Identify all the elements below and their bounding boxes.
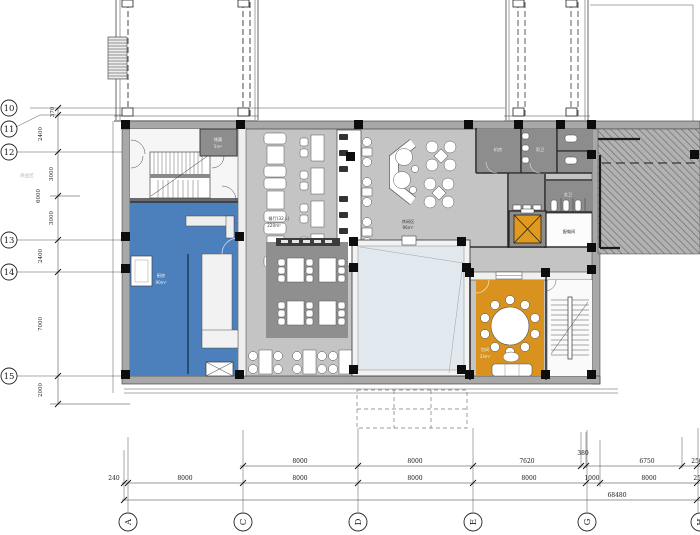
grid-bubble-row-15: 15 bbox=[4, 372, 15, 382]
dim-lower-8000-cd: 8000 bbox=[292, 475, 307, 482]
grid-bubble-row-14: 14 bbox=[4, 268, 15, 278]
floor-plan-drawing: 370 2400 6000 3000 3000 2400 7000 2000 8… bbox=[0, 0, 700, 535]
room-label-lounge-area: 96m² bbox=[402, 225, 413, 230]
grid-bubble-col-c: C bbox=[239, 519, 249, 526]
coffee-table bbox=[503, 352, 519, 362]
dim-upper-250: 250 bbox=[691, 458, 700, 465]
grid-bubble-row-13: 13 bbox=[4, 236, 15, 246]
dim-upper-8000-cd: 8000 bbox=[292, 458, 307, 465]
dim-lower-8000-de: 8000 bbox=[407, 475, 422, 482]
dim-lower-240: 240 bbox=[108, 475, 120, 482]
room-label-kitchen-area: 90m² bbox=[155, 280, 166, 285]
grid-bubble-col-e: E bbox=[469, 519, 479, 525]
dim-left-2000: 2000 bbox=[38, 383, 44, 397]
upper-building-left bbox=[108, 0, 258, 121]
round-dining-table bbox=[491, 307, 529, 345]
room-label-kitchen-name: 厨房 bbox=[157, 272, 165, 279]
room-label-female-wc: 女卫 bbox=[564, 191, 572, 198]
dim-upper-7620: 7620 bbox=[519, 458, 534, 465]
dim-lower-2500: 2500 bbox=[693, 475, 700, 482]
dim-upper-380: 380 bbox=[577, 450, 589, 457]
multipurpose-room bbox=[352, 236, 470, 376]
upper-building-right bbox=[504, 0, 693, 121]
stairwell-right bbox=[545, 280, 592, 376]
grid-bubble-col-g: G bbox=[583, 518, 593, 525]
room-label-private-area: 33m² bbox=[479, 354, 490, 359]
room-label-dining-name: 餐厅(32人) bbox=[268, 215, 290, 222]
dimension-chain-bottom: 8000 8000 7620 380 6750 250 240 8000 800… bbox=[108, 450, 700, 503]
louver-vent bbox=[108, 37, 127, 79]
grid-bubble-col-labels: A C D E G H bbox=[124, 518, 700, 526]
sofa bbox=[492, 364, 532, 376]
dim-left-3000a: 3000 bbox=[49, 167, 55, 181]
dim-lower-8000-gh: 8000 bbox=[641, 475, 656, 482]
dim-lower-8000-eg: 8000 bbox=[521, 475, 536, 482]
grid-bubbles-cols bbox=[119, 513, 700, 531]
dim-left-7000: 7000 bbox=[38, 317, 44, 331]
storage-room bbox=[200, 129, 237, 156]
grid-bubble-row-12: 12 bbox=[4, 148, 15, 158]
room-label-lounge-name: 休闲区 bbox=[402, 218, 415, 225]
kitchen-room bbox=[130, 202, 238, 376]
elevator bbox=[509, 209, 546, 247]
room-label-storage-area: 5m² bbox=[214, 144, 223, 149]
room-label-machine-room: 机房 bbox=[494, 146, 502, 153]
dim-left-2400a: 2400 bbox=[38, 127, 44, 141]
room-label-power-room: 配电间 bbox=[563, 228, 576, 235]
dim-lower-8000-ac: 8000 bbox=[177, 475, 192, 482]
dim-left-2400b: 2400 bbox=[38, 249, 44, 263]
floor-plan-canvas: 370 2400 6000 3000 3000 2400 7000 2000 8… bbox=[0, 0, 700, 535]
dining-carpet-zone bbox=[266, 238, 348, 338]
dim-left-370: 370 bbox=[50, 106, 56, 117]
zone-note: 商业区 bbox=[20, 172, 34, 179]
kitchen-sink bbox=[131, 256, 152, 286]
room-label-private-name: 包间 bbox=[481, 346, 489, 353]
canopy-dashed bbox=[357, 390, 467, 428]
grid-bubble-col-a: A bbox=[124, 518, 134, 526]
dining-lower-tables bbox=[249, 350, 363, 374]
ground-lines bbox=[124, 389, 618, 393]
grid-bubble-row-10: 10 bbox=[4, 104, 15, 114]
bar-stools bbox=[362, 138, 372, 247]
hatched-area bbox=[598, 129, 700, 254]
room-label-dining-area: 220m² bbox=[267, 223, 281, 228]
room-label-storage-name: 储藏 bbox=[214, 136, 223, 143]
dim-upper-6750: 6750 bbox=[639, 458, 654, 465]
grid-bubble-row-11: 11 bbox=[4, 125, 15, 135]
dim-lower-1000: 1000 bbox=[584, 475, 599, 482]
dimension-chain-left: 370 2400 6000 3000 3000 2400 7000 2000 bbox=[36, 105, 130, 407]
dim-upper-8000-de: 8000 bbox=[407, 458, 422, 465]
dim-left-3000b: 3000 bbox=[49, 211, 55, 225]
dim-total-68480: 68480 bbox=[607, 492, 626, 499]
grid-bubble-col-h: H bbox=[696, 518, 700, 525]
dim-left-6000: 6000 bbox=[36, 189, 42, 203]
grid-bubble-col-d: D bbox=[354, 518, 364, 525]
